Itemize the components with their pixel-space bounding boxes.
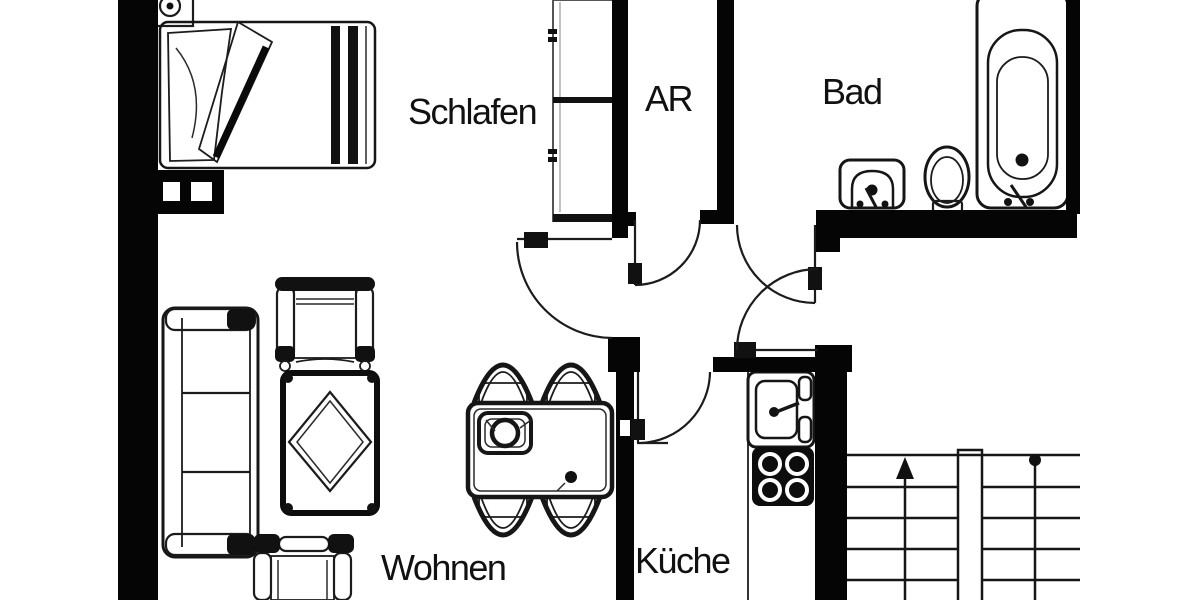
stove — [752, 447, 814, 506]
sofa — [163, 308, 258, 557]
room-label-storage: AR — [645, 78, 693, 119]
kitchen-sink — [748, 372, 814, 447]
armchair-top — [275, 277, 375, 371]
bathtub — [977, 0, 1068, 208]
room-label-kitchen: Küche — [635, 540, 730, 581]
stair-stringer — [958, 450, 982, 600]
wall-kitchen-top — [713, 357, 818, 372]
bathroom-sink — [840, 160, 904, 208]
wall-bedroom-storage — [612, 0, 628, 238]
door-storage — [628, 220, 700, 285]
bed — [160, 22, 375, 168]
door-bathroom — [737, 225, 822, 303]
armchair-bottom — [254, 534, 354, 600]
room-label-bedroom: Schlafen — [408, 91, 536, 132]
room-label-living: Wohnen — [381, 547, 505, 588]
wall-left-outer — [118, 0, 158, 600]
wall-bath-bottom — [816, 210, 1077, 238]
floor-plan: Schlafen AR Bad Wohnen Küche — [0, 0, 1200, 600]
floor-plan-canvas: Schlafen AR Bad Wohnen Küche — [0, 0, 1200, 600]
table-tray — [479, 413, 531, 453]
room-label-bathroom: Bad — [822, 71, 882, 112]
stair-direction-arrow — [896, 457, 914, 600]
dining-table — [468, 403, 612, 497]
wall-bath-right — [1066, 0, 1080, 214]
door-entrance — [734, 269, 818, 358]
wall-stairwell — [815, 345, 847, 600]
wall-storage-bath — [717, 0, 734, 212]
chimney — [153, 170, 224, 214]
toilet — [925, 147, 969, 212]
door-kitchen — [631, 372, 710, 443]
door-bedroom — [517, 232, 612, 338]
wardrobe — [548, 0, 615, 222]
blanket — [199, 22, 272, 162]
wall-living-kitchen — [616, 360, 634, 600]
staircase — [847, 450, 1080, 600]
couch-table — [283, 373, 377, 513]
